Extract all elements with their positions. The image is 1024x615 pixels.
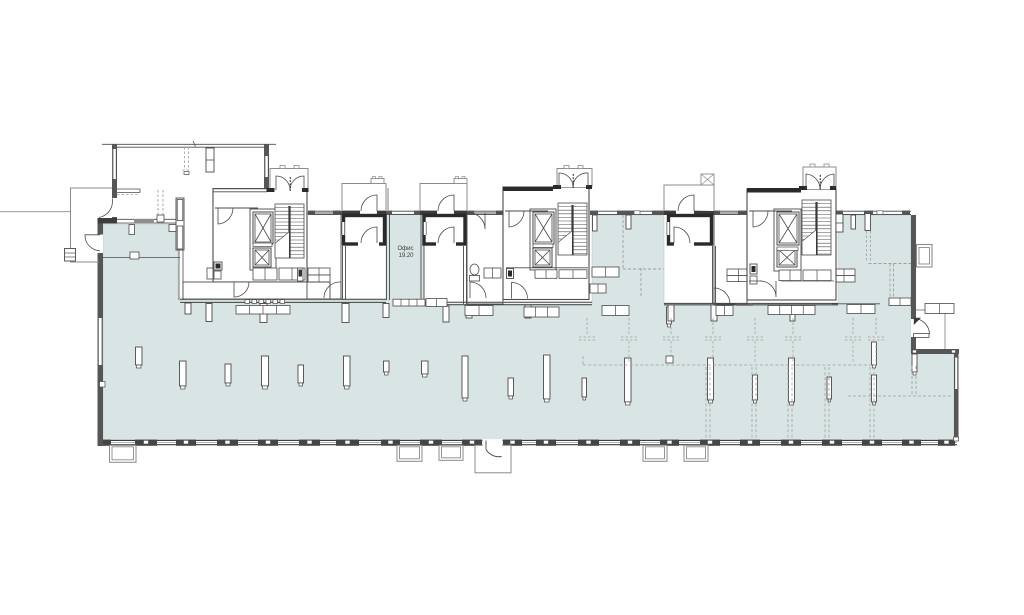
svg-text:19.20: 19.20: [398, 253, 414, 259]
svg-text:Офис: Офис: [398, 246, 414, 252]
